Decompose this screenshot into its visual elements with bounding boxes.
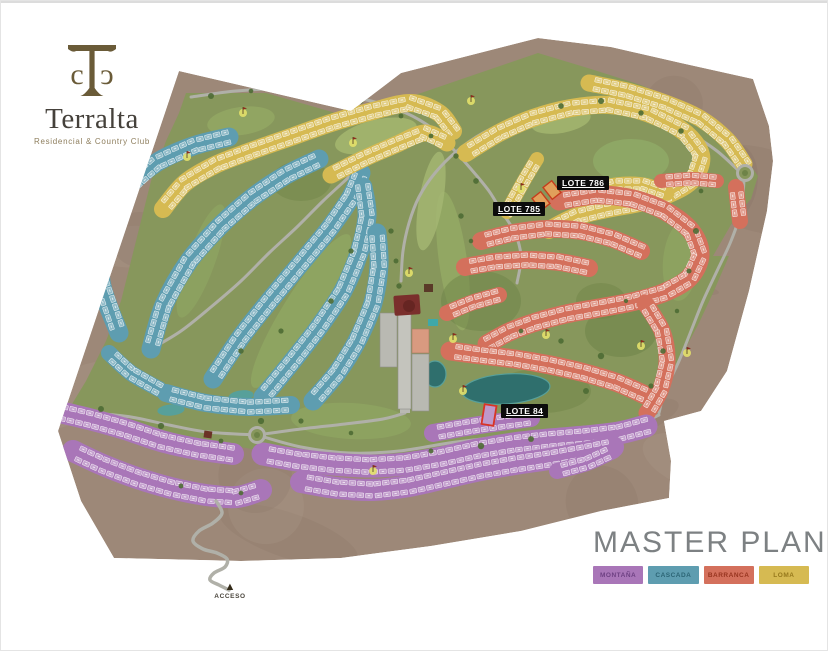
lot: [655, 330, 661, 337]
lot: [599, 299, 607, 305]
lot: [382, 261, 387, 268]
lot: [618, 306, 626, 312]
lot: [209, 454, 216, 459]
lot: [498, 350, 505, 355]
tree-icon: [349, 431, 354, 436]
lot: [104, 211, 111, 219]
lot: [536, 222, 543, 227]
lot: [213, 396, 220, 401]
tree-icon: [388, 228, 393, 233]
lot: [493, 470, 500, 476]
lot: [622, 208, 630, 214]
lot: [359, 210, 364, 217]
lot: [576, 445, 583, 451]
lot: [473, 346, 480, 351]
lot: [340, 480, 347, 485]
lot: [107, 230, 112, 237]
lot: [330, 491, 337, 497]
lot: [514, 362, 521, 368]
lot: [200, 486, 208, 492]
lot: [208, 499, 215, 504]
lot: [616, 296, 624, 302]
lot: [691, 181, 698, 186]
tree-icon: [399, 114, 404, 119]
lot: [210, 443, 217, 448]
lot: [477, 257, 484, 263]
lot: [505, 436, 512, 442]
lot: [510, 225, 517, 230]
lot: [605, 211, 613, 217]
lot: [423, 464, 430, 470]
lot: [96, 238, 101, 245]
lot: [534, 452, 541, 458]
lot: [380, 270, 386, 277]
lot: [366, 294, 372, 301]
tree-icon: [219, 439, 224, 444]
lot: [545, 222, 552, 227]
lot: [184, 482, 192, 488]
lot: [499, 449, 506, 455]
lot: [666, 174, 673, 179]
lot: [392, 491, 399, 496]
lot: [496, 264, 503, 269]
tree-icon: [678, 128, 684, 134]
lot: [531, 365, 538, 371]
lot: [520, 234, 527, 239]
lot: [515, 422, 522, 427]
lot: [573, 258, 581, 264]
lot: [570, 233, 577, 238]
lot: [582, 259, 590, 265]
tree-icon: [469, 239, 473, 243]
lot: [590, 99, 597, 104]
lot: [557, 430, 564, 435]
lot: [601, 309, 609, 315]
lot: [406, 467, 413, 473]
lot: [379, 279, 385, 286]
lot: [740, 200, 745, 207]
lot: [362, 470, 369, 475]
lot: [376, 296, 382, 303]
highlight-lot-84: [482, 404, 497, 426]
lot: [566, 430, 573, 435]
lot: [105, 256, 110, 263]
lot: [454, 421, 461, 427]
lot: [311, 453, 318, 458]
lot: [412, 453, 419, 459]
lot: [497, 360, 504, 365]
lot: [485, 472, 492, 478]
lot: [357, 481, 364, 486]
terralta-logo: cc Terralta Residencial & Country Club: [17, 41, 167, 146]
lot: [371, 253, 376, 260]
lot: [582, 428, 589, 433]
title-block: MASTER PLAN MONTAÑACASCADABARRANCALOMA: [593, 528, 809, 584]
lot: [591, 301, 599, 307]
lot: [515, 447, 522, 452]
access-arrow-icon: ▲: [205, 582, 255, 592]
lot: [362, 457, 369, 462]
lot: [529, 263, 536, 268]
lot: [548, 431, 555, 436]
lot: [94, 272, 99, 279]
lot: [336, 468, 343, 473]
tree-icon: [660, 348, 666, 354]
lot: [709, 174, 716, 179]
lot: [456, 344, 463, 349]
tree-icon: [298, 86, 304, 92]
tree-icon: [598, 98, 604, 104]
lot: [530, 253, 537, 258]
lot: [332, 479, 339, 485]
tree-icon: [298, 418, 303, 423]
tree-icon: [208, 93, 214, 99]
lot: [517, 454, 524, 460]
lot: [554, 264, 562, 270]
lot: [498, 424, 505, 430]
lot: [368, 277, 374, 284]
lot: [399, 478, 406, 483]
lot: [614, 209, 622, 215]
lot: [563, 266, 571, 272]
svg-text:c: c: [70, 58, 83, 91]
lot: [391, 479, 398, 484]
lot: [264, 409, 271, 414]
lot: [521, 262, 528, 267]
lot: [366, 481, 373, 486]
lot: [247, 409, 254, 414]
roundabout: [250, 428, 265, 443]
lot: [506, 423, 513, 428]
lot: [400, 490, 407, 495]
lot: [488, 359, 495, 364]
lot: [515, 352, 522, 358]
lot: [414, 465, 421, 471]
lot: [190, 496, 198, 502]
lot: [108, 203, 115, 211]
logo-name: Terralta: [17, 105, 167, 134]
lot: [397, 468, 404, 473]
lot: [124, 193, 131, 201]
lot: [536, 464, 543, 470]
lot: [115, 188, 122, 196]
lot: [633, 179, 640, 184]
lot: [562, 233, 569, 238]
lot: [574, 429, 581, 434]
lot: [540, 432, 547, 437]
lot: [573, 201, 580, 207]
lot: [562, 223, 569, 228]
lot: [313, 488, 320, 494]
lot: [592, 311, 600, 317]
lot: [740, 208, 745, 215]
lot: [292, 463, 299, 469]
lot: [482, 452, 489, 458]
lot: [217, 487, 224, 492]
tree-icon: [624, 299, 628, 303]
tree-icon: [458, 213, 463, 218]
lot: [198, 497, 206, 503]
svg-text:c: c: [100, 58, 113, 91]
lot: [370, 244, 375, 251]
lot: [463, 356, 470, 361]
lot: [437, 424, 444, 430]
lot: [370, 457, 377, 462]
lot: [181, 494, 189, 500]
lot: [277, 448, 284, 454]
lot: [273, 398, 280, 403]
lot: [521, 253, 528, 258]
lot: [496, 437, 503, 443]
lot: [469, 258, 476, 264]
label-lote-84: LOTE 84: [501, 404, 548, 418]
lot: [625, 179, 632, 184]
lot: [275, 460, 282, 466]
lot: [513, 263, 520, 268]
lot: [344, 469, 351, 474]
lot: [581, 100, 588, 105]
access-label: ACCESO: [205, 593, 255, 600]
lot: [556, 254, 564, 260]
lot: [565, 202, 572, 208]
lot: [502, 469, 509, 475]
lot: [229, 408, 236, 413]
lot: [519, 224, 526, 229]
lot: [205, 396, 212, 401]
lot: [614, 200, 621, 205]
tree-icon: [394, 259, 399, 264]
lot: [255, 399, 262, 404]
lot: [487, 265, 494, 271]
tree-icon: [648, 383, 653, 388]
tree-icon: [473, 178, 479, 184]
lot: [94, 282, 101, 290]
lot: [445, 422, 452, 428]
lot: [105, 264, 110, 271]
lot: [377, 287, 383, 294]
lot: [328, 455, 335, 460]
lot: [608, 425, 615, 430]
lot: [239, 399, 246, 404]
lot: [282, 408, 289, 413]
zone-barranca: [730, 187, 746, 221]
lot: [121, 180, 129, 188]
lot: [599, 426, 606, 431]
label-lote-785: LOTE 785: [493, 202, 545, 216]
lot: [537, 232, 544, 237]
lot: [500, 457, 507, 463]
tree-icon: [328, 298, 334, 304]
lot: [567, 315, 575, 321]
lot: [381, 252, 386, 259]
lot: [488, 438, 495, 444]
lot: [200, 453, 207, 458]
lot: [522, 363, 529, 369]
tree-icon: [258, 418, 264, 424]
tree-icon: [519, 329, 524, 334]
lot: [623, 201, 630, 206]
lot: [507, 448, 514, 454]
lot: [121, 200, 128, 208]
legend-item-loma: LOMA: [759, 566, 809, 584]
lot: [527, 223, 534, 228]
lot: [367, 285, 373, 292]
lot: [481, 348, 488, 353]
lot: [490, 349, 497, 354]
lot: [504, 254, 511, 259]
legend-item-cascada: CASCADA: [648, 566, 698, 584]
lot: [554, 222, 561, 227]
lot: [538, 263, 545, 268]
lot: [315, 476, 322, 482]
lot: [420, 452, 427, 458]
lot: [525, 453, 532, 459]
tree-icon: [358, 98, 363, 103]
lot: [523, 421, 530, 426]
lot: [582, 199, 589, 205]
lot: [301, 464, 308, 469]
lot: [111, 196, 118, 204]
tree-icon: [249, 89, 254, 94]
tree-icon: [98, 406, 104, 412]
lot: [507, 351, 514, 356]
lot: [256, 409, 263, 414]
lot: [730, 192, 735, 199]
tree-icon: [158, 423, 164, 429]
lot: [576, 314, 584, 320]
logo-tagline: Residencial & Country Club: [17, 137, 167, 146]
lot: [574, 304, 582, 310]
lot: [519, 466, 526, 472]
lot: [491, 459, 498, 465]
lot: [490, 451, 497, 457]
lot: [514, 435, 521, 440]
lot: [192, 484, 200, 490]
tree-icon: [429, 134, 434, 139]
lot: [310, 465, 317, 470]
legend-item-montana: MONTAÑA: [593, 566, 643, 584]
terralta-monogram-icon: cc: [60, 41, 124, 101]
lot: [208, 487, 215, 492]
tree-icon: [583, 388, 589, 394]
lot: [616, 190, 623, 195]
tree-icon: [348, 248, 353, 253]
lot: [582, 109, 589, 114]
lot: [375, 493, 382, 498]
lot: [302, 452, 309, 457]
lot: [731, 201, 736, 208]
lot: [483, 460, 490, 466]
lot: [609, 308, 617, 314]
lot: [284, 462, 291, 468]
lot: [128, 174, 136, 182]
legend-label: BARRANCA: [708, 572, 750, 579]
legend: MONTAÑACASCADABARRANCALOMA: [593, 566, 809, 584]
lot: [667, 345, 673, 352]
lot: [732, 210, 737, 217]
tree-icon: [429, 449, 434, 454]
tree-icon: [686, 268, 691, 273]
lot: [439, 433, 446, 439]
lot: [382, 480, 389, 485]
lot: [354, 457, 361, 462]
lot: [568, 446, 575, 452]
lot: [462, 419, 469, 425]
lot: [601, 440, 609, 446]
lot: [219, 444, 226, 449]
tree-icon: [675, 309, 679, 313]
lot: [504, 264, 511, 269]
lot: [664, 328, 670, 335]
lot: [307, 475, 314, 481]
lot: [273, 408, 280, 413]
lot: [379, 469, 386, 474]
lot: [505, 361, 512, 366]
terrain-texture: [61, 144, 133, 188]
lot: [584, 443, 592, 449]
access-marker: ▲ ACCESO: [205, 582, 255, 600]
lot: [524, 353, 531, 359]
lot: [571, 190, 578, 196]
lot: [668, 354, 674, 361]
lot: [565, 305, 573, 311]
lot: [345, 456, 352, 461]
lot: [674, 174, 681, 179]
lot: [404, 454, 411, 460]
zone-barranca: [661, 173, 717, 187]
lot: [365, 183, 370, 190]
lot: [370, 268, 376, 275]
lot: [590, 198, 597, 204]
lot: [212, 406, 219, 411]
lot: [357, 493, 364, 498]
legend-label: MONTAÑA: [600, 572, 636, 579]
master-plan-page: cc Terralta Residencial & Country Club L…: [0, 0, 828, 651]
lot: [340, 492, 347, 497]
tree-icon: [558, 103, 564, 109]
lot: [113, 216, 120, 224]
lot: [511, 235, 518, 240]
lot: [388, 469, 395, 474]
lot: [134, 168, 142, 176]
lot: [294, 451, 301, 457]
lot: [247, 400, 254, 405]
lot: [559, 448, 566, 454]
lot: [471, 357, 478, 362]
lot: [539, 366, 546, 372]
lot: [471, 268, 478, 274]
lot: [572, 100, 579, 105]
lot: [173, 492, 181, 498]
tree-icon: [179, 484, 184, 489]
lot: [481, 427, 488, 433]
lot: [665, 337, 671, 344]
lot: [495, 254, 502, 259]
lot: [545, 231, 552, 236]
lot: [532, 355, 539, 361]
lot: [324, 478, 331, 484]
lot: [238, 409, 245, 414]
lot: [541, 356, 548, 362]
lot: [692, 173, 699, 178]
lot: [512, 253, 519, 258]
tree-icon: [638, 110, 643, 115]
lot: [580, 269, 588, 275]
tree-icon: [238, 348, 243, 353]
lot: [464, 345, 471, 350]
lot: [571, 267, 579, 273]
lot: [109, 223, 116, 231]
